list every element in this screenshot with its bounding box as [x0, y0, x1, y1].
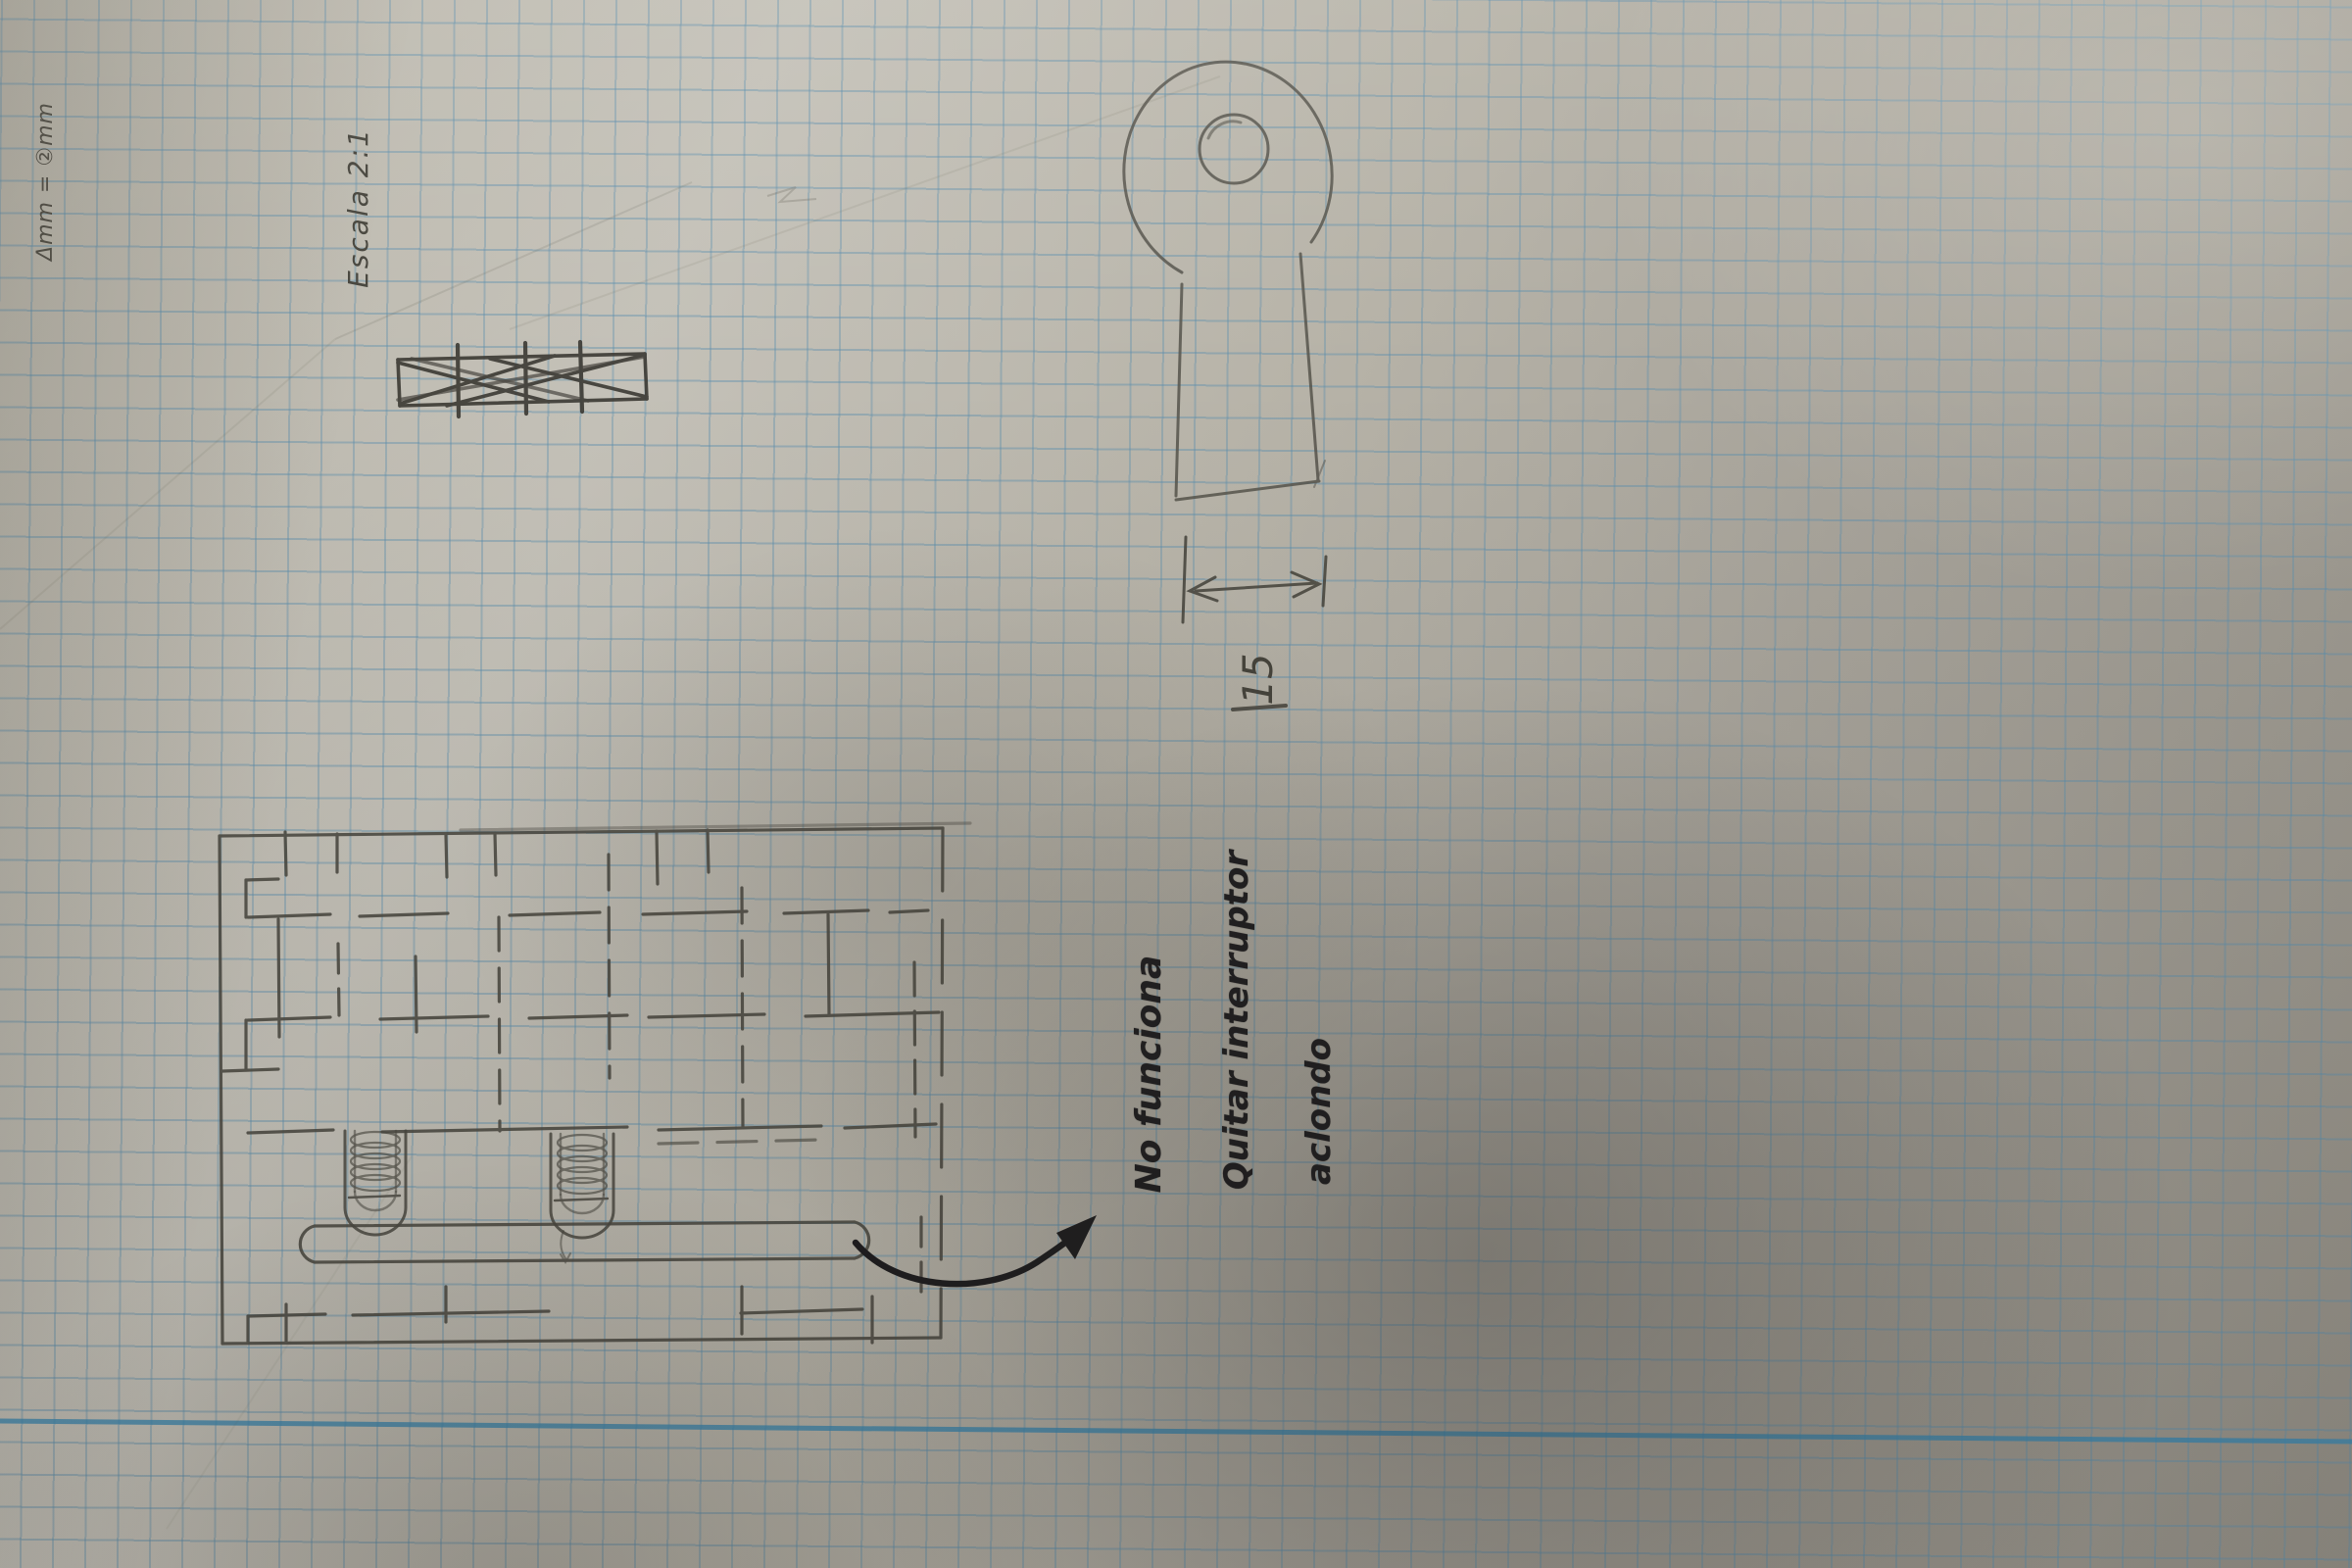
- rod-end-stem-right: [1300, 254, 1318, 480]
- extension-line-left: [1183, 537, 1186, 622]
- repair-note-line2: Quitar interruptor: [1209, 844, 1264, 1197]
- mechanism-sketch: [220, 823, 970, 1344]
- outer-right: [941, 828, 943, 1338]
- rod-end-stem-left: [1176, 284, 1182, 496]
- extension-line-right: [1323, 557, 1326, 606]
- spring-left-sketch: [345, 1131, 406, 1235]
- rod-end-outer-ring: [1124, 62, 1332, 272]
- outer-left: [220, 836, 222, 1344]
- dimension-value: 15: [1233, 635, 1282, 723]
- dimension-line: [1196, 583, 1317, 591]
- ink-arrow: [856, 1215, 1097, 1284]
- rod-end-stem-bottom: [1176, 481, 1319, 500]
- rod-end-sketch: [1124, 62, 1332, 500]
- scale-note: Escala 2:1: [338, 110, 377, 306]
- repair-note-line3: aclondo: [1293, 1013, 1346, 1209]
- rod-end-hole: [1200, 115, 1268, 183]
- spring-left-coil: [351, 1132, 400, 1191]
- repair-note-line1: No funciona: [1120, 927, 1177, 1221]
- crosshatched-bar-sketch: [398, 342, 647, 416]
- corner-scale-note: Δmm = ②mm: [28, 83, 62, 279]
- ink-arrowhead: [1056, 1215, 1097, 1259]
- spring-right-coil: [558, 1135, 607, 1194]
- slot-sketch: [300, 1222, 868, 1262]
- outer-bottom: [222, 1338, 941, 1344]
- graph-paper-sketch-photo: Δmm = ②mm Escala 2:1 15 No funciona Quit…: [0, 0, 2352, 1568]
- spring-right-sketch: [551, 1134, 613, 1238]
- paper-creases: [0, 76, 1220, 1529]
